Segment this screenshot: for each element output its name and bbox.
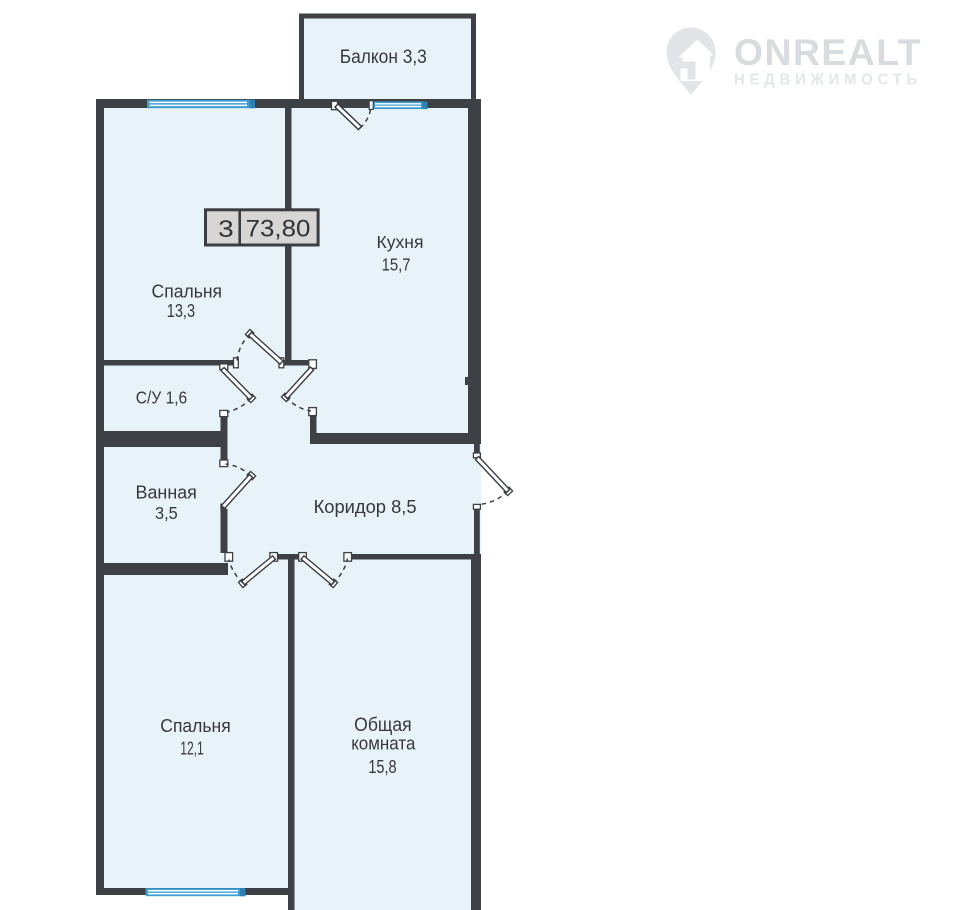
svg-text:НЕДВИЖИМОСТЬ: НЕДВИЖИМОСТЬ <box>734 72 922 89</box>
svg-text:3: 3 <box>218 216 234 243</box>
svg-text:Коридор 8,5: Коридор 8,5 <box>314 496 417 517</box>
svg-text:С/У 1,6: С/У 1,6 <box>136 387 187 407</box>
svg-text:Ванная: Ванная <box>136 482 197 502</box>
svg-text:12,1: 12,1 <box>180 739 204 759</box>
svg-text:комната: комната <box>351 734 416 754</box>
svg-text:15,7: 15,7 <box>382 254 411 274</box>
svg-text:Балкон 3,3: Балкон 3,3 <box>340 47 427 68</box>
svg-text:Кухня: Кухня <box>377 232 424 252</box>
svg-text:ONREALT: ONREALT <box>734 32 922 73</box>
svg-text:3,5: 3,5 <box>155 503 178 523</box>
svg-text:13,3: 13,3 <box>167 301 195 321</box>
svg-text:15,8: 15,8 <box>368 757 396 777</box>
svg-text:Спальня: Спальня <box>160 716 230 736</box>
svg-text:73,80: 73,80 <box>246 216 311 243</box>
svg-text:Спальня: Спальня <box>152 282 223 302</box>
